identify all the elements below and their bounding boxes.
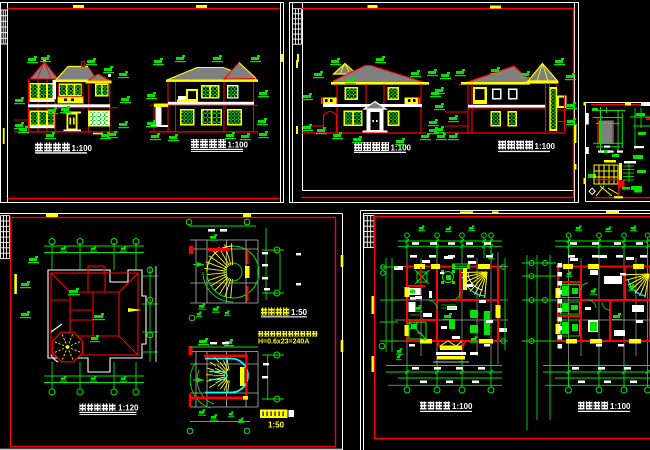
svg-text:1:50: 1:50 xyxy=(268,421,285,430)
svg-text:1:100: 1:100 xyxy=(72,144,93,153)
svg-text:1:120: 1:120 xyxy=(118,403,139,412)
svg-text:1:100: 1:100 xyxy=(228,140,249,149)
svg-text:H=0.6x23=240A: H=0.6x23=240A xyxy=(258,339,309,346)
svg-text:1:100: 1:100 xyxy=(610,402,631,411)
svg-text:1:100: 1:100 xyxy=(535,142,556,151)
svg-text:1:100: 1:100 xyxy=(452,402,473,411)
svg-text:1:50: 1:50 xyxy=(291,308,308,317)
